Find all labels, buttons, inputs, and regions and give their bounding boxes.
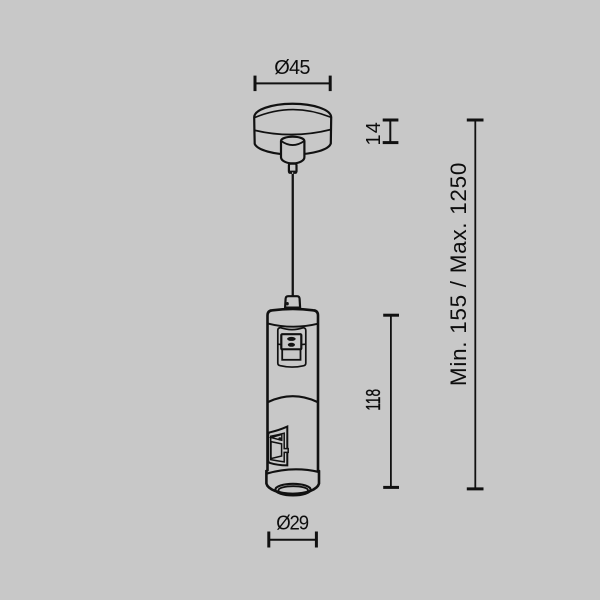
svg-text:Ø29: Ø29 bbox=[276, 513, 308, 535]
svg-text:118: 118 bbox=[362, 389, 384, 411]
svg-text:14: 14 bbox=[363, 121, 385, 146]
svg-text:Min. 155 / Max. 1250: Min. 155 / Max. 1250 bbox=[446, 162, 471, 386]
svg-text:Ø45: Ø45 bbox=[274, 57, 310, 79]
